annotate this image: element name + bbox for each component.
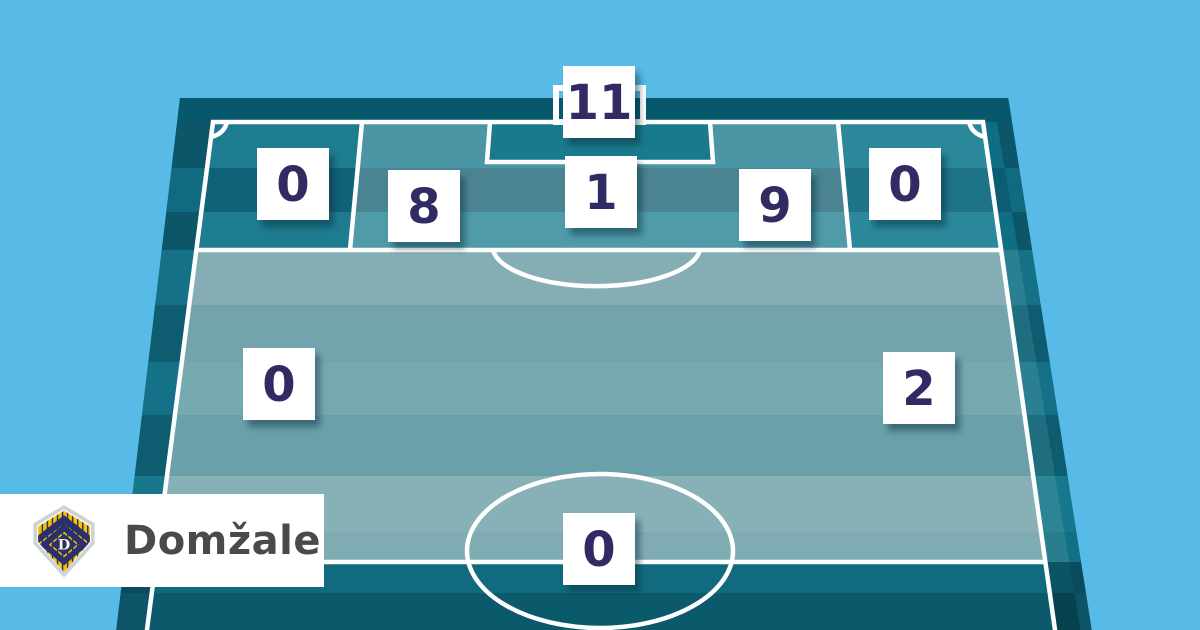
zone-count-byline-right: 0 [869, 148, 941, 220]
team-name: Domžale [124, 518, 321, 564]
club-badge-icon: D ★ ★ [28, 505, 100, 577]
zone-count-penalty-right: 9 [739, 169, 811, 241]
team-banner: D ★ ★ Domžale [0, 494, 324, 587]
zone-count-penalty-left: 8 [388, 170, 460, 242]
zone-count-center-circle: 0 [563, 513, 635, 585]
zone-count-byline-left: 0 [257, 148, 329, 220]
pitch-zone-graphic: 11 1 8 9 0 0 0 2 0 [0, 0, 1200, 630]
zone-count-midfield-right: 2 [883, 352, 955, 424]
zone-count-six-yard-center: 1 [565, 156, 637, 228]
zone-count-goal: 11 [563, 66, 635, 138]
zone-count-midfield-left: 0 [243, 348, 315, 420]
svg-text:D: D [58, 536, 70, 553]
